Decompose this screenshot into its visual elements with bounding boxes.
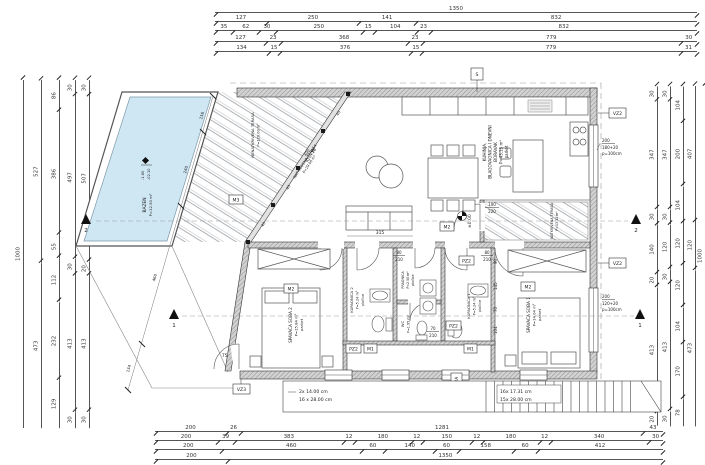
svg-text:220: 220: [488, 209, 496, 214]
bathroom1-label: KUPAONICA 1: [466, 293, 471, 319]
dining-table: [428, 158, 478, 198]
stove-icon: [570, 122, 588, 156]
coffee-table: [379, 164, 403, 188]
svg-text:80: 80: [484, 250, 490, 255]
bedroom2-label: SPAVAĆA SOBA 2: [288, 307, 293, 343]
nightstand: [250, 356, 261, 367]
hall-dim-70: 70: [493, 306, 498, 312]
covered-terrace-small-label: NATKRIVENA TERASA: [550, 202, 554, 239]
hall-dim-104: 104: [493, 326, 498, 334]
site-slant-lines: [76, 246, 240, 388]
laundry-label: PRAONICA: [401, 271, 405, 289]
slant-dim-460: 460: [151, 273, 158, 282]
uncovered-terrace-label: NENATKRIVENA TERASA: [250, 112, 255, 158]
chair: [463, 200, 475, 211]
stairs-note-right-2: 15x 28.00 cm: [500, 397, 532, 403]
marker-m1: M1: [367, 347, 374, 353]
svg-text:210: 210: [483, 257, 491, 262]
pool-level-top: -1.60: [141, 170, 145, 180]
marker-vz2: VZ2: [613, 261, 622, 267]
bedroom1-label: SPAVAĆA SOBA 1: [526, 297, 531, 333]
living-label-3: BORAVAK: [493, 142, 498, 162]
marker-vz3: VZ3: [237, 387, 246, 393]
marker-s: S: [476, 72, 479, 78]
svg-text:120+20: 120+20: [602, 301, 619, 306]
bedroom1-window-spec: 200 120+20 p=100cm: [602, 294, 622, 312]
marker-m1: M1: [467, 347, 474, 353]
stairs-note-left-2: 16 x 28.00 cm: [299, 397, 333, 403]
marker-m2: M2: [444, 225, 451, 231]
svg-text:200: 200: [602, 138, 610, 143]
marker-pz2: PZ2: [349, 347, 358, 353]
svg-text:80: 80: [396, 250, 402, 255]
covered-terrace-small-area: P=13.12 m²: [555, 211, 559, 231]
svg-text:200: 200: [602, 294, 610, 299]
uncovered-terrace-area: P=120.00 m²: [257, 123, 261, 147]
stairs-note-right-1: 16x 17.31 cm: [500, 389, 532, 395]
door70-spec: 70 210: [427, 326, 439, 338]
living-label-2: BLAGOVAONICA I DNEVNI: [488, 125, 493, 179]
bathroom2-floor: pločice: [361, 294, 365, 306]
floor-plan-canvas: 1350 127250141832 3562302501510423832 12…: [0, 0, 705, 465]
exterior-stairs: [283, 381, 661, 412]
toilet: [417, 321, 427, 335]
stool: [500, 166, 511, 177]
svg-text:315: 315: [376, 230, 385, 236]
marker-m2: M2: [288, 287, 295, 293]
sink-icon: [528, 100, 552, 112]
hall-dim-90: 90: [493, 258, 498, 264]
living-area: P=43.15 m²: [499, 140, 504, 164]
bedroom1-area: P=14.04 m²: [532, 303, 537, 326]
hall-dim-145: 145: [493, 282, 498, 290]
pool-area: P=12.50 m²: [148, 193, 153, 216]
chair: [447, 200, 459, 211]
svg-text:1: 1: [172, 323, 176, 329]
svg-text:p=100cm: p=100cm: [602, 307, 622, 312]
stairs-note-left-1: 2x 14.00 cm: [299, 389, 328, 395]
svg-text:100: 100: [488, 202, 496, 207]
pillow: [522, 352, 547, 364]
kitchen-island: [513, 140, 543, 192]
chair: [431, 200, 443, 211]
svg-text:210: 210: [429, 333, 437, 338]
marker-pz2: PZ2: [449, 324, 458, 330]
marker-m2: M2: [525, 285, 532, 291]
svg-text:2: 2: [84, 228, 88, 234]
nightstand: [505, 355, 516, 366]
bedroom2-area: P=15.84 m²: [294, 313, 299, 336]
slant-dim-134: 134: [125, 364, 132, 373]
marker-pz2: PZ2: [462, 259, 471, 265]
bathroom1-floor: pločice: [478, 300, 482, 312]
bathroom1-area: P=5.24 m²: [473, 296, 477, 315]
wc-area: P=1.95 m²: [407, 314, 411, 333]
svg-text:2: 2: [634, 228, 638, 234]
living-label-1: KUHINJA,: [482, 143, 487, 162]
svg-text:70: 70: [430, 326, 436, 331]
toilet: [372, 316, 384, 332]
chair: [463, 145, 475, 156]
wc-label: WC: [400, 320, 405, 327]
chair: [447, 145, 459, 156]
nightstand: [322, 356, 333, 367]
svg-text:180+20: 180+20: [602, 145, 619, 150]
pool-level-bottom: -02.10: [147, 168, 151, 180]
marker-m3: M3: [233, 198, 240, 204]
sofa-dim: 315: [347, 230, 413, 236]
laundry-area: P=2.50 m²: [406, 271, 410, 289]
chair: [431, 145, 443, 156]
bedroom1-furniture: [505, 250, 586, 368]
bathroom2-area: P=5.24 m²: [356, 290, 360, 309]
laundry-floor: pločice: [411, 274, 415, 285]
svg-text:1: 1: [638, 323, 642, 329]
level-marker: ±0.00: [458, 212, 474, 229]
svg-text:p=100cm: p=100cm: [602, 151, 622, 156]
floor-plan-svg: -1.60 -02.10 BAZEN P=12.50 m² 116 240 46…: [0, 0, 705, 465]
living-floor: parket: [504, 145, 509, 158]
pillow: [551, 352, 576, 364]
bathroom2-label: KUPAONICA 2: [349, 287, 354, 313]
bedroom1-floor: parket: [537, 308, 542, 321]
sofa: [346, 206, 412, 230]
bedroom2-floor: parket: [299, 318, 304, 331]
svg-text:210: 210: [395, 257, 403, 262]
marker-vz2: VZ2: [613, 111, 622, 117]
